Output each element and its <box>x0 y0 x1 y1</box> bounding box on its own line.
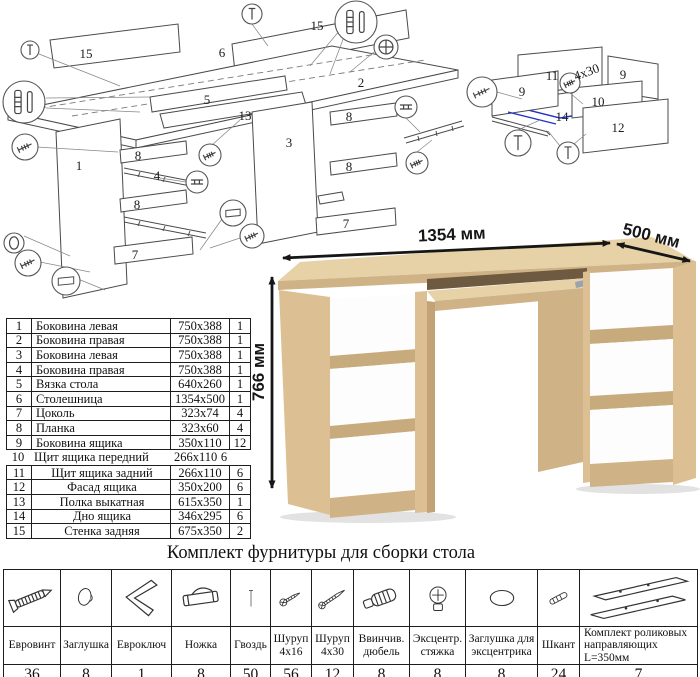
part-qty: 6 <box>230 509 251 524</box>
parts-row: 5Вязка стола640x2601 <box>7 377 251 392</box>
hardware-item-label: Гвоздь <box>231 627 271 665</box>
eurobolt-icon <box>15 250 41 276</box>
part-label: 15 <box>80 46 93 61</box>
part-size: 675x350 <box>171 524 230 539</box>
part-label: 9 <box>519 84 526 99</box>
cam-lock-icon <box>416 572 460 624</box>
part-size: 266x110 <box>174 450 216 465</box>
foot-icon <box>52 267 80 295</box>
foot-icon <box>173 572 229 624</box>
shkant-icon <box>539 572 579 624</box>
hardware-qty-row: 36818505612888247 <box>4 665 698 677</box>
hardware-item-qty: 24 <box>538 665 580 677</box>
cap-icon <box>4 233 24 253</box>
part-label: 7 <box>343 216 350 231</box>
hardware-item-qty: 8 <box>172 665 231 677</box>
part-qty: 4 <box>230 421 251 436</box>
rail-icon <box>395 96 417 118</box>
part-number: 10 <box>6 450 30 465</box>
hardware-item-label: Заглушка <box>61 627 112 665</box>
parts-list: 1Боковина левая750x38812Боковина правая7… <box>6 318 234 539</box>
part-name: Щит ящика передний <box>30 450 174 465</box>
part-qty: 12 <box>230 435 251 450</box>
hardware-item-qty: 12 <box>312 665 354 677</box>
part-name: Боковина правая <box>32 333 171 348</box>
part-label: 15 <box>311 18 324 33</box>
parts-row: 15Стенка задняя675x3502 <box>7 524 251 539</box>
hardware-kit-table: ЕвровинтЗаглушкаЕвроключНожкаГвоздьШуруп… <box>3 569 698 677</box>
parts-row: 13Полка выкатная615x3501 <box>7 495 251 510</box>
width-dimension: 1354 мм <box>418 224 486 246</box>
desk-drawer-front <box>330 362 417 426</box>
part-size: 1354x500 <box>171 391 230 406</box>
parts-row: 11Щит ящика задний266x1106 <box>7 465 251 480</box>
desk-drawer-front <box>590 405 673 464</box>
screw-icon <box>272 572 310 624</box>
part-number: 9 <box>7 435 32 450</box>
part-name: Щит ящика задний <box>32 465 171 480</box>
hardware-item-qty: 1 <box>112 665 172 677</box>
part-qty: 6 <box>216 450 232 465</box>
part-qty: 6 <box>230 465 251 480</box>
part-label: 3 <box>286 135 293 150</box>
hardware-item-label: Евровинт <box>4 627 61 665</box>
hardware-item-qty: 8 <box>410 665 466 677</box>
part-size: 350x110 <box>171 435 230 450</box>
part-number: 12 <box>7 480 32 495</box>
dowel-shkant-icon <box>3 81 45 123</box>
part-label: 8 <box>135 148 142 163</box>
parts-table-row-10: 10Щит ящика передний266x1106 <box>6 450 232 465</box>
hardware-item-label: Евроключ <box>112 627 172 665</box>
screw-icon <box>406 152 428 174</box>
hardware-item-qty: 56 <box>271 665 312 677</box>
part-number: 14 <box>7 509 32 524</box>
eurobolt-icon <box>5 572 59 624</box>
part-number: 3 <box>7 348 32 363</box>
part-size: 750x388 <box>171 333 230 348</box>
part-number: 7 <box>7 406 32 421</box>
part-name: Дно ящика <box>32 509 171 524</box>
hardware-item-qty: 50 <box>231 665 271 677</box>
part-label: 11 <box>546 68 559 83</box>
parts-row: 4Боковина правая750x3881 <box>7 362 251 377</box>
part-qty: 1 <box>230 348 251 363</box>
hardware-item-label: Шуруп 4x16 <box>271 627 312 665</box>
part-name: Планка <box>32 421 171 436</box>
parts-row: 2Боковина правая750x3881 <box>7 333 251 348</box>
parts-row: 7Цоколь323x744 <box>7 406 251 421</box>
part-label: 7 <box>132 247 139 262</box>
height-dimension: 766 мм <box>249 343 268 401</box>
part-label: 12 <box>612 120 625 135</box>
part-label: 8 <box>346 159 353 174</box>
nail-icon <box>557 142 579 164</box>
part-name: Вязка стола <box>32 377 171 392</box>
hardware-item-label: Ввинчив. дюбель <box>354 627 410 665</box>
desk-render <box>278 237 700 523</box>
rail-icon <box>186 171 208 193</box>
drawer-exploded-diagram: 11991014124x30 <box>467 47 668 164</box>
hardware-item-label: Шкант <box>538 627 580 665</box>
nail-icon <box>242 4 262 24</box>
parts-row: 14Дно ящика346x2956 <box>7 509 251 524</box>
desk-left-side-panel <box>279 290 330 515</box>
hardware-item-qty: 8 <box>466 665 538 677</box>
part-number: 2 <box>7 333 32 348</box>
hardware-item-qty: 7 <box>580 665 698 677</box>
part-name: Боковина левая <box>32 348 171 363</box>
cam-cap-icon <box>477 572 527 624</box>
hardware-item-qty: 8 <box>61 665 112 677</box>
part-name: Стенка задняя <box>32 524 171 539</box>
dowel-shkant-icon <box>335 1 377 43</box>
rails-icon <box>583 572 695 624</box>
part-size: 615x350 <box>171 495 230 510</box>
parts-row: 12Фасад ящика350x2006 <box>7 480 251 495</box>
part-label: 5 <box>204 92 211 107</box>
part-label: 8 <box>134 197 141 212</box>
part-name: Столешница <box>32 391 171 406</box>
foot-icon <box>220 200 246 226</box>
part-qty: 1 <box>230 333 251 348</box>
hardware-item-label: Заглушка для эксцентрика <box>466 627 538 665</box>
desk-drawer-front <box>330 431 417 498</box>
part-qty: 2 <box>230 524 251 539</box>
desk-right-inner-side <box>538 289 583 472</box>
part-qty: 1 <box>230 319 251 334</box>
parts-row: 8Планка323x604 <box>7 421 251 436</box>
part-number: 13 <box>7 495 32 510</box>
part-qty: 6 <box>230 480 251 495</box>
eurobolt-icon <box>199 144 221 166</box>
hardware-item-label: Эксцентр. стяжка <box>410 627 466 665</box>
screw-icon <box>240 224 264 248</box>
part-label: 6 <box>219 45 226 60</box>
part-label: 10 <box>592 94 605 109</box>
part-label: 8 <box>346 109 353 124</box>
hardware-labels-row: ЕвровинтЗаглушкаЕвроключНожкаГвоздьШуруп… <box>4 627 698 665</box>
part-label: 13 <box>239 108 252 123</box>
part-number: 15 <box>7 524 32 539</box>
parts-row: 1Боковина левая750x3881 <box>7 319 251 334</box>
parts-row: 6Столешница1354x5001 <box>7 391 251 406</box>
part-qty: 4 <box>230 406 251 421</box>
part-size: 640x260 <box>171 377 230 392</box>
screw-long-icon <box>313 572 353 624</box>
desk-drawer-front <box>330 294 417 356</box>
hardware-kit-title: Комплект фурнитуры для сборки стола <box>0 543 700 564</box>
desk-drawer-front <box>590 339 673 396</box>
hardware-item-label: Шуруп 4x30 <box>312 627 354 665</box>
part-qty: 1 <box>230 391 251 406</box>
part-size: 350x200 <box>171 480 230 495</box>
part-label: 1 <box>76 158 83 173</box>
parts-table-segment-1: 1Боковина левая750x38812Боковина правая7… <box>6 318 251 450</box>
part-size: 266x110 <box>171 465 230 480</box>
part-name: Фасад ящика <box>32 480 171 495</box>
desk-right-side-panel <box>673 261 696 485</box>
part-size: 323x60 <box>171 421 230 436</box>
desk-drawer-front <box>590 268 673 330</box>
hexkey-icon <box>114 572 170 624</box>
eurobolt-icon <box>467 77 497 107</box>
part-number: 1 <box>7 319 32 334</box>
cam-lock-icon <box>374 35 398 59</box>
part-name: Полка выкатная <box>32 495 171 510</box>
part-label: 2 <box>358 75 365 90</box>
part-size: 750x388 <box>171 362 230 377</box>
dowel-icon <box>356 572 408 624</box>
part-qty: 1 <box>230 495 251 510</box>
parts-row: 3Боковина левая750x3881 <box>7 348 251 363</box>
parts-row: 9Боковина ящика350x11012 <box>7 435 251 450</box>
nail-icon <box>236 572 266 624</box>
part-size: 346x295 <box>171 509 230 524</box>
cap-icon <box>63 572 109 624</box>
part-name: Цоколь <box>32 406 171 421</box>
assembly-sheet: 156152513318487887 11991014124x30 <box>0 0 700 677</box>
part-number: 5 <box>7 377 32 392</box>
part-name: Боковина ящика <box>32 435 171 450</box>
nail-icon <box>505 130 531 156</box>
nail-icon <box>21 41 39 59</box>
parts-table-segment-2: 11Щит ящика задний266x110612Фасад ящика3… <box>6 465 251 539</box>
part-number: 6 <box>7 391 32 406</box>
part-number: 4 <box>7 362 32 377</box>
part-label: 14 <box>556 109 570 124</box>
part-qty: 1 <box>230 377 251 392</box>
hardware-item-label: Комплект роликовых направляющих L=350мм <box>580 627 698 665</box>
hardware-item-qty: 36 <box>4 665 61 677</box>
hardware-item-qty: 8 <box>354 665 410 677</box>
hardware-icons-row <box>4 570 698 627</box>
part-label: 4 <box>154 168 161 183</box>
part-label: 9 <box>620 67 627 82</box>
part-name: Боковина левая <box>32 319 171 334</box>
part-qty: 1 <box>230 362 251 377</box>
part-size: 750x388 <box>171 348 230 363</box>
part-size: 750x388 <box>171 319 230 334</box>
part-number: 11 <box>7 465 32 480</box>
part-name: Боковина правая <box>32 362 171 377</box>
hardware-item-label: Ножка <box>172 627 231 665</box>
eurobolt-icon <box>12 134 38 160</box>
part-number: 8 <box>7 421 32 436</box>
part-size: 323x74 <box>171 406 230 421</box>
